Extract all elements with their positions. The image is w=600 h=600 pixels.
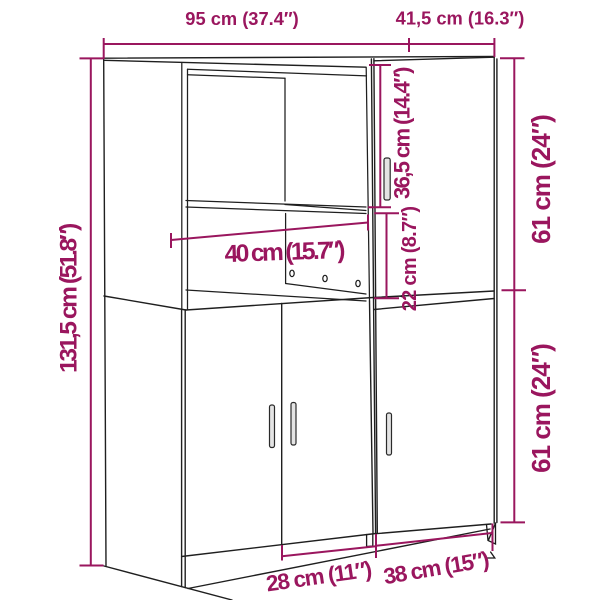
svg-text:40 cm (15.7″): 40 cm (15.7″)	[224, 237, 345, 268]
svg-text:41,5 cm (16.3″): 41,5 cm (16.3″)	[396, 8, 525, 29]
svg-text:61 cm (24″): 61 cm (24″)	[526, 344, 556, 473]
svg-text:36,5 cm (14.4″): 36,5 cm (14.4″)	[390, 67, 415, 199]
svg-text:22 cm (8.7″): 22 cm (8.7″)	[399, 207, 421, 312]
svg-text:95 cm (37.4″): 95 cm (37.4″)	[185, 8, 298, 29]
svg-text:131,5 cm (51.8″): 131,5 cm (51.8″)	[55, 224, 82, 373]
svg-text:61 cm (24″): 61 cm (24″)	[526, 115, 556, 244]
